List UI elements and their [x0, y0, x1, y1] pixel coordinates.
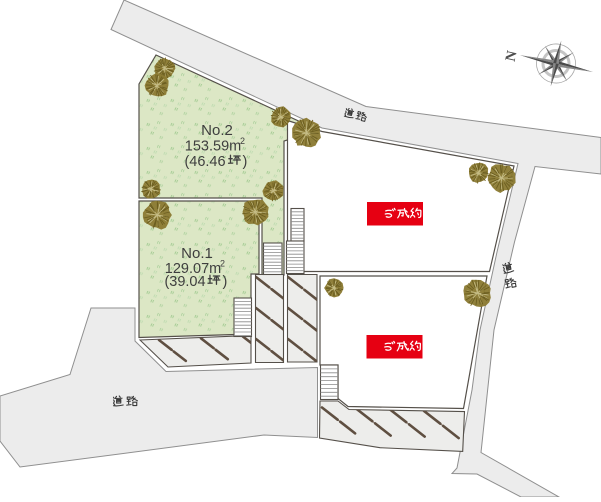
svg-text:(46.46: (46.46 — [184, 154, 225, 170]
svg-text:2: 2 — [220, 259, 225, 269]
svg-text:): ) — [223, 274, 228, 290]
svg-text:No.2: No.2 — [201, 122, 233, 139]
svg-text:153.59m: 153.59m — [185, 139, 241, 155]
svg-text:(39.04: (39.04 — [164, 274, 205, 290]
svg-text:No.1: No.1 — [181, 245, 213, 262]
svg-text:): ) — [243, 154, 248, 170]
svg-text:2: 2 — [240, 136, 245, 146]
